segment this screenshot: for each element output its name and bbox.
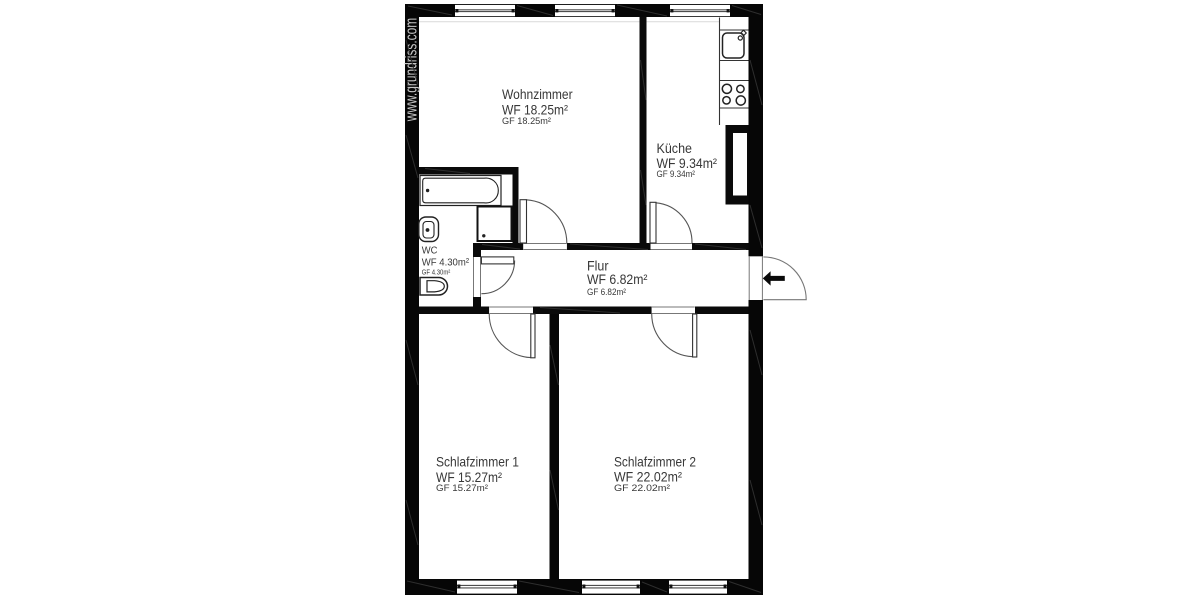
- svg-text:WF 4.30m²: WF 4.30m²: [422, 257, 470, 268]
- svg-text:Wohnzimmer: Wohnzimmer: [502, 86, 573, 102]
- svg-text:www.grundriss.com: www.grundriss.com: [402, 18, 421, 122]
- svg-text:GF 6.82m²: GF 6.82m²: [587, 287, 626, 298]
- svg-text:GF 18.25m²: GF 18.25m²: [502, 116, 551, 127]
- svg-text:WC: WC: [422, 245, 438, 256]
- svg-text:GF 9.34m²: GF 9.34m²: [657, 169, 696, 180]
- svg-text:GF 4.30m²: GF 4.30m²: [422, 270, 451, 277]
- svg-text:Küche: Küche: [657, 140, 693, 156]
- svg-text:Schlafzimmer 2: Schlafzimmer 2: [614, 454, 696, 470]
- svg-text:GF 22.02m²: GF 22.02m²: [614, 483, 670, 494]
- svg-text:GF 15.27m²: GF 15.27m²: [436, 483, 488, 494]
- svg-text:WF 6.82m²: WF 6.82m²: [587, 271, 648, 287]
- svg-text:Schlafzimmer 1: Schlafzimmer 1: [436, 454, 519, 470]
